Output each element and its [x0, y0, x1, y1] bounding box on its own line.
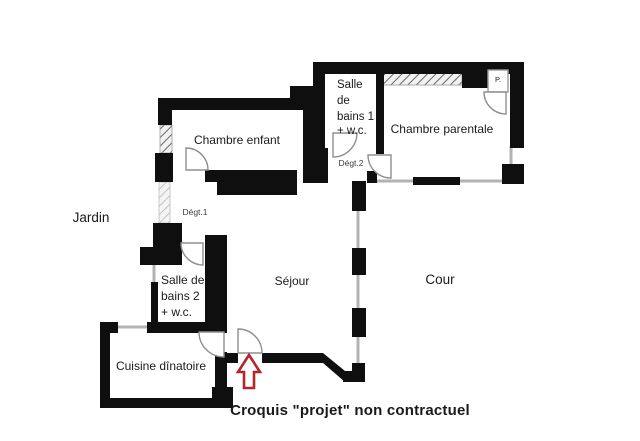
wall	[262, 353, 323, 363]
wall	[352, 181, 366, 211]
room-label-chambre-parentale: Chambre parentale	[391, 122, 494, 136]
wall	[502, 164, 524, 184]
wall	[352, 308, 366, 337]
wall	[510, 62, 524, 148]
window-hatch-parentale-top	[382, 73, 462, 85]
wall	[205, 170, 297, 182]
floor-plan-page: Chambre enfant Salle de bains 1 + w.c. C…	[0, 0, 640, 441]
exterior-label-jardin: Jardin	[73, 210, 110, 225]
room-label-sdb1-line3: bains 1	[337, 111, 374, 123]
exterior-label-cour: Cour	[425, 272, 455, 287]
wall	[462, 74, 490, 88]
room-label-sdb1-line2: de	[337, 95, 350, 107]
room-label-sdb1-line1: Salle	[337, 79, 363, 91]
wall	[376, 74, 384, 154]
wall	[151, 282, 158, 323]
window-hatch-enfant-left	[160, 125, 172, 153]
room-label-degt2: Dégt.2	[338, 158, 363, 168]
room-label-chambre-enfant: Chambre enfant	[194, 133, 281, 147]
wall	[140, 247, 153, 265]
room-label-sdb2-line2: bains 2	[161, 289, 200, 303]
plan-caption: Croquis "projet" non contractuel	[230, 402, 470, 419]
wall	[217, 182, 297, 195]
wall	[100, 322, 110, 408]
room-label-sdb1-line4: + w.c.	[337, 125, 367, 137]
room-label-cuisine: Cuisine dînatoire	[116, 359, 206, 373]
wall	[100, 398, 223, 408]
wall	[413, 177, 460, 185]
wall	[158, 98, 172, 125]
wall	[303, 86, 325, 148]
wall	[352, 248, 366, 275]
floor-plan-drawing: Chambre enfant Salle de bains 1 + w.c. C…	[0, 0, 640, 441]
wall	[303, 148, 328, 183]
wall	[205, 235, 227, 330]
wall	[153, 223, 182, 265]
window-hatch-degt1-left	[159, 182, 170, 223]
wall	[155, 153, 173, 182]
room-label-placard: P.	[495, 75, 501, 84]
wall	[227, 353, 238, 363]
wall	[352, 363, 365, 382]
room-label-degt1: Dégt.1	[182, 207, 207, 217]
room-label-sdb2-line3: + w.c.	[161, 305, 192, 319]
room-label-sejour: Séjour	[275, 274, 310, 288]
room-label-sdb2-line1: Salle de	[161, 273, 205, 287]
